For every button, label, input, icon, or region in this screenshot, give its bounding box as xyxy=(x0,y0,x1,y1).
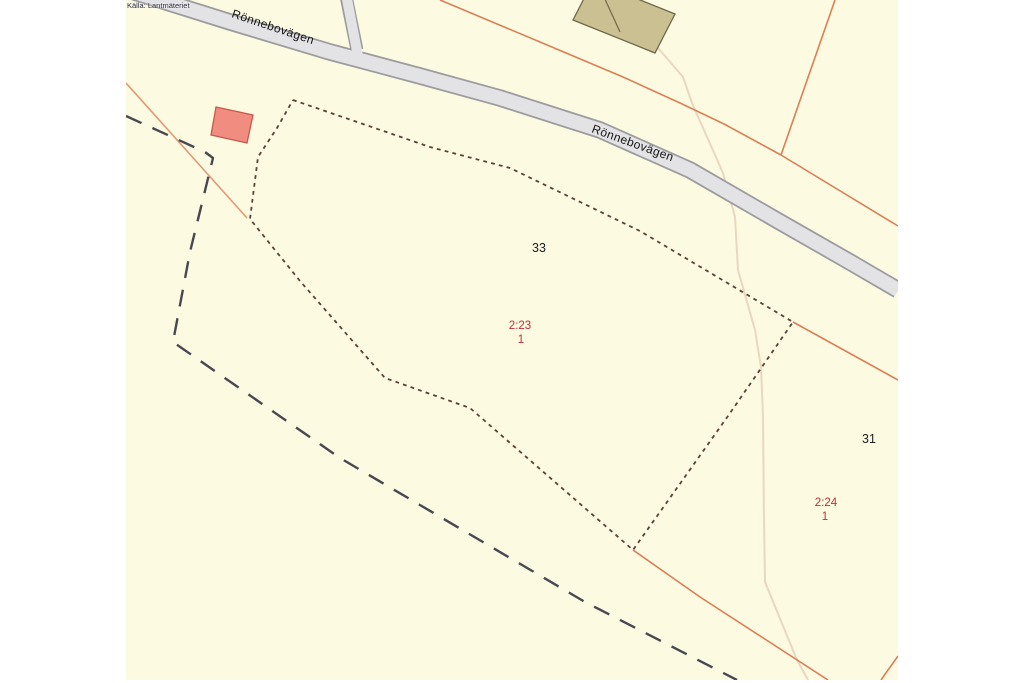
parcel-unit-label: 1 xyxy=(822,511,828,523)
parcel-unit-label: 1 xyxy=(518,334,524,346)
source-attribution: Källa: Lantmäteriet xyxy=(127,1,190,10)
map-canvas: RönnebovägenRönnebovägen332:231312:241 xyxy=(0,0,1024,683)
parcel-block-label: 31 xyxy=(862,432,876,446)
map-viewport[interactable]: RönnebovägenRönnebovägen332:231312:241 K… xyxy=(0,0,1024,683)
parcel-number-label: 2:23 xyxy=(509,320,531,332)
parcel-number-label: 2:24 xyxy=(815,497,838,509)
parcel-block-label: 33 xyxy=(532,241,546,255)
